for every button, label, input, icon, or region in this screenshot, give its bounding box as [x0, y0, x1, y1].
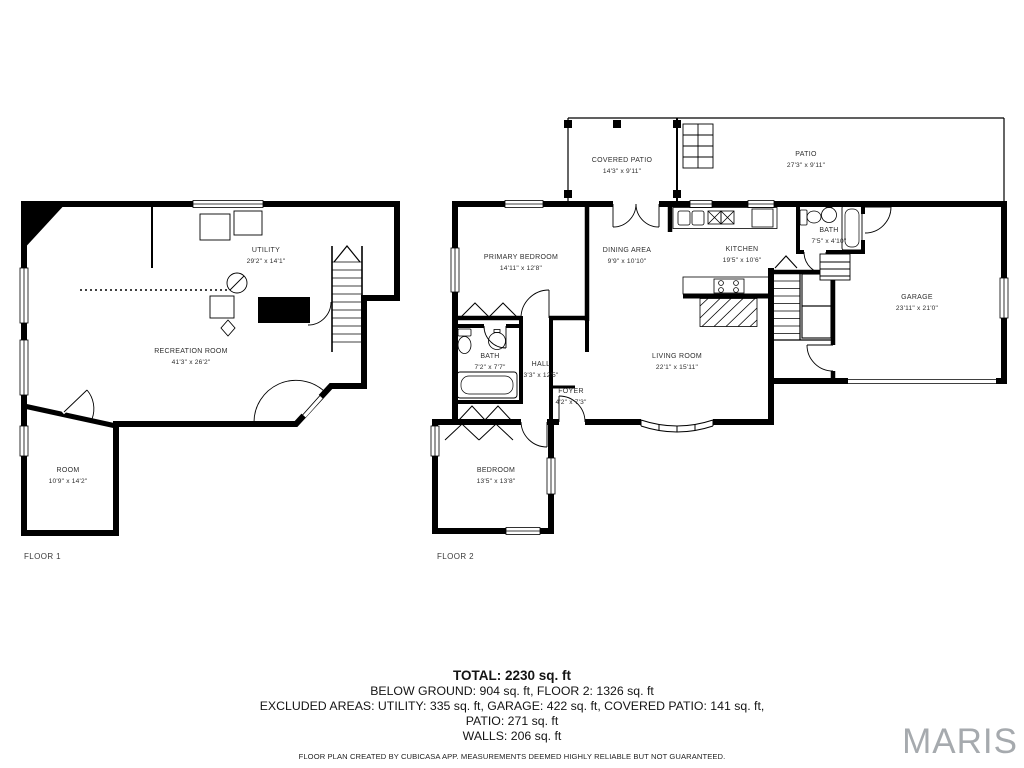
room-label-primary-bedroom: PRIMARY BEDROOM 14'11" x 12'8"	[484, 253, 558, 273]
floor1-windows	[20, 201, 263, 457]
room-label-bath-lower: BATH 7'2" x 7'7"	[474, 352, 505, 372]
room-label-room: ROOM 10'9" x 14'2"	[49, 466, 88, 486]
floor1-utility-fixtures	[200, 211, 262, 336]
floorplan-drawing	[0, 0, 1024, 768]
floor1-fireplace	[258, 297, 310, 323]
area-summary: TOTAL: 2230 sq. ft BELOW GROUND: 904 sq.…	[0, 668, 1024, 761]
garage-steps-icon	[820, 254, 850, 280]
patio-area-text: PATIO: 271 sq. ft	[0, 714, 1024, 728]
room-label-bedroom: BEDROOM 13'5" x 13'8"	[477, 466, 516, 486]
total-area-text: TOTAL: 2230 sq. ft	[0, 668, 1024, 683]
floorplan-page: UTILITY 29'2" x 14'1" RECREATION ROOM 41…	[0, 0, 1024, 768]
room-label-living-room: LIVING ROOM 22'1" x 15'11"	[652, 352, 702, 372]
bay-window	[641, 419, 713, 432]
room-label-kitchen: KITCHEN 19'5" x 10'6"	[723, 245, 762, 265]
floor2-caption: FLOOR 2	[437, 552, 474, 561]
open-to-below-hatch	[700, 299, 757, 327]
floor2-interior-walls	[452, 202, 865, 424]
floor2-walls	[432, 201, 1007, 534]
room-label-recreation-room: RECREATION ROOM 41'3" x 26'2"	[154, 347, 228, 367]
disclaimer-text: FLOOR PLAN CREATED BY CUBICASA APP. MEAS…	[0, 752, 1024, 761]
room-label-garage: GARAGE 23'11" x 21'0"	[896, 293, 938, 313]
room-label-covered-patio: COVERED PATIO 14'3" x 9'11"	[592, 156, 652, 176]
excluded-areas-text: EXCLUDED AREAS: UTILITY: 335 sq. ft, GAR…	[0, 699, 1024, 713]
floor1-caption: FLOOR 1	[24, 552, 61, 561]
floor1-stairs-icon	[332, 246, 362, 352]
floors-area-text: BELOW GROUND: 904 sq. ft, FLOOR 2: 1326 …	[0, 684, 1024, 698]
room-label-dining-area: DINING AREA 9'9" x 10'10"	[603, 246, 651, 266]
room-label-foyer: FOYER 4'2" x 7'3"	[555, 387, 586, 407]
room-label-patio: PATIO 27'3" x 9'11"	[787, 150, 825, 170]
room-label-hall: HALL 3'3" x 12'5"	[524, 360, 559, 380]
room-label-bath-upper: BATH 7'5" x 4'10"	[812, 226, 847, 246]
maris-watermark: MARIS	[902, 722, 1018, 762]
floor1-corner-wedge	[21, 201, 68, 252]
room-label-utility: UTILITY 29'2" x 14'1"	[247, 246, 286, 266]
floor2-windows	[431, 201, 1008, 535]
walls-area-text: WALLS: 206 sq. ft	[0, 729, 1024, 743]
deck-stairs-icon	[683, 124, 713, 168]
